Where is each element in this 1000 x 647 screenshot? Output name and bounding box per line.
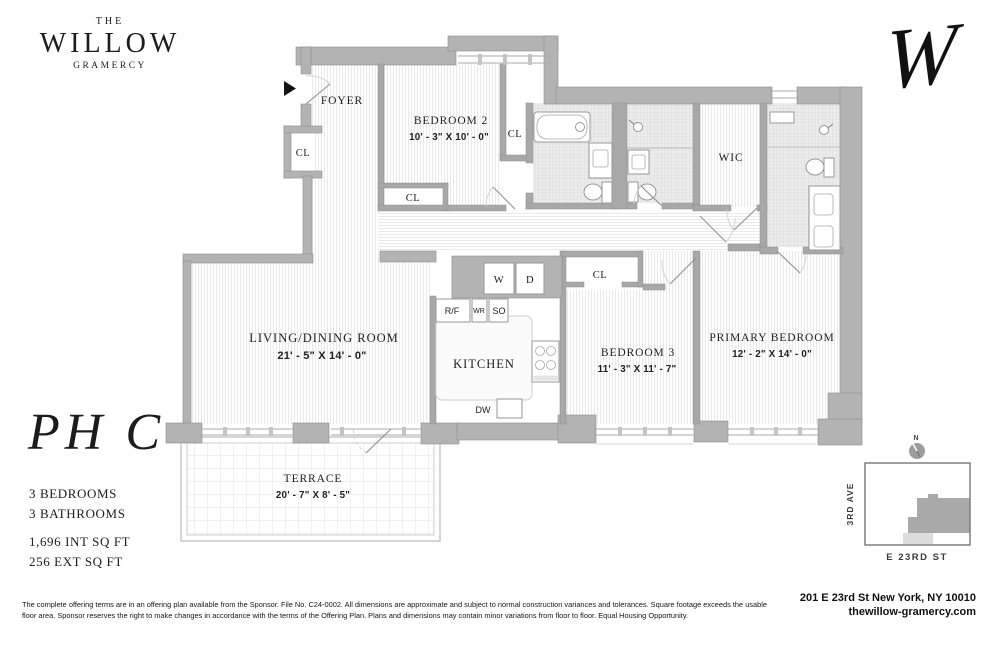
tub-drain xyxy=(576,123,585,132)
bedroom2-label: BEDROOM 2 xyxy=(414,115,488,127)
wine-fridge-label: WR xyxy=(473,308,485,315)
closet-bedroom2-label: CL xyxy=(406,193,420,204)
terrace-label: TERRACE xyxy=(284,473,343,485)
shower-head xyxy=(634,123,643,132)
bath-bench xyxy=(770,112,794,123)
building-address: 201 E 23rd St New York, NY 10010 xyxy=(736,592,976,606)
shower-head xyxy=(820,126,829,135)
fridge-label: R/F xyxy=(445,306,460,316)
foyer-label: FOYER xyxy=(321,95,363,107)
toilet-tank xyxy=(602,182,612,203)
wic-label: WIC xyxy=(718,152,743,164)
dryer-label: D xyxy=(526,275,534,286)
map-street-label: E 23RD ST xyxy=(886,552,948,563)
washer-label: W xyxy=(494,275,504,286)
dishwasher xyxy=(497,399,522,418)
building-footprint xyxy=(908,494,969,533)
primary-bedroom-dims: 12' - 2" X 14' - 0" xyxy=(732,349,812,360)
closet-hall-label: CL xyxy=(508,129,522,140)
floorplan-page: THE WILLOW GRAMERCY W xyxy=(0,0,1000,647)
toilet-bowl xyxy=(584,184,602,200)
floorplan-svg: FOYER BEDROOM 2 10' - 3" X 10' - 0" CL C… xyxy=(0,0,1000,647)
footer-address-block: 201 E 23rd St New York, NY 10010 thewill… xyxy=(736,592,976,620)
closet-bedroom3-label: CL xyxy=(593,270,607,281)
bedroom3-dims: 11' - 3" X 11' - 7" xyxy=(598,364,677,375)
legal-disclaimer: The complete offering terms are in an of… xyxy=(22,599,770,622)
primary-bedroom-label: PRIMARY BEDROOM xyxy=(709,332,834,344)
building-annex xyxy=(903,533,933,544)
bedroom2-dims: 10' - 3" X 10' - 0" xyxy=(409,132,489,143)
bedroom3-label: BEDROOM 3 xyxy=(601,347,675,359)
compass-north-label: N xyxy=(913,435,918,442)
closet-foyer-label: CL xyxy=(296,148,310,159)
toilet-bowl xyxy=(806,159,824,175)
terrace-dims: 20' - 7" X 8' - 5" xyxy=(276,490,350,501)
location-map: N 3RD AVE E 23RD ST xyxy=(845,435,970,563)
unit-bedrooms: 3 BEDROOMS xyxy=(29,484,130,504)
sink-vanity xyxy=(628,150,649,174)
unit-bathrooms: 3 BATHROOMS xyxy=(29,504,130,524)
entry-arrow-icon xyxy=(284,81,296,96)
living-dining-dims: 21' - 5" X 14' - 0" xyxy=(277,350,366,362)
living-dining-label: LIVING/DINING ROOM xyxy=(249,331,399,345)
website-url: thewillow-gramercy.com xyxy=(736,606,976,620)
toilet-tank xyxy=(824,158,834,177)
dishwasher-label: DW xyxy=(476,405,491,415)
sink-vanity xyxy=(589,143,612,178)
unit-name: PH C xyxy=(28,403,165,462)
unit-int-sqft: 1,696 INT SQ FT xyxy=(29,532,130,552)
kitchen-label: KITCHEN xyxy=(453,357,515,371)
unit-ext-sqft: 256 EXT SQ FT xyxy=(29,552,130,572)
speed-oven-label: SO xyxy=(492,306,505,316)
map-avenue-label: 3RD AVE xyxy=(845,483,855,526)
terrace-area xyxy=(181,437,440,541)
unit-stats: 3 BEDROOMS 3 BATHROOMS 1,696 INT SQ FT 2… xyxy=(29,484,130,571)
